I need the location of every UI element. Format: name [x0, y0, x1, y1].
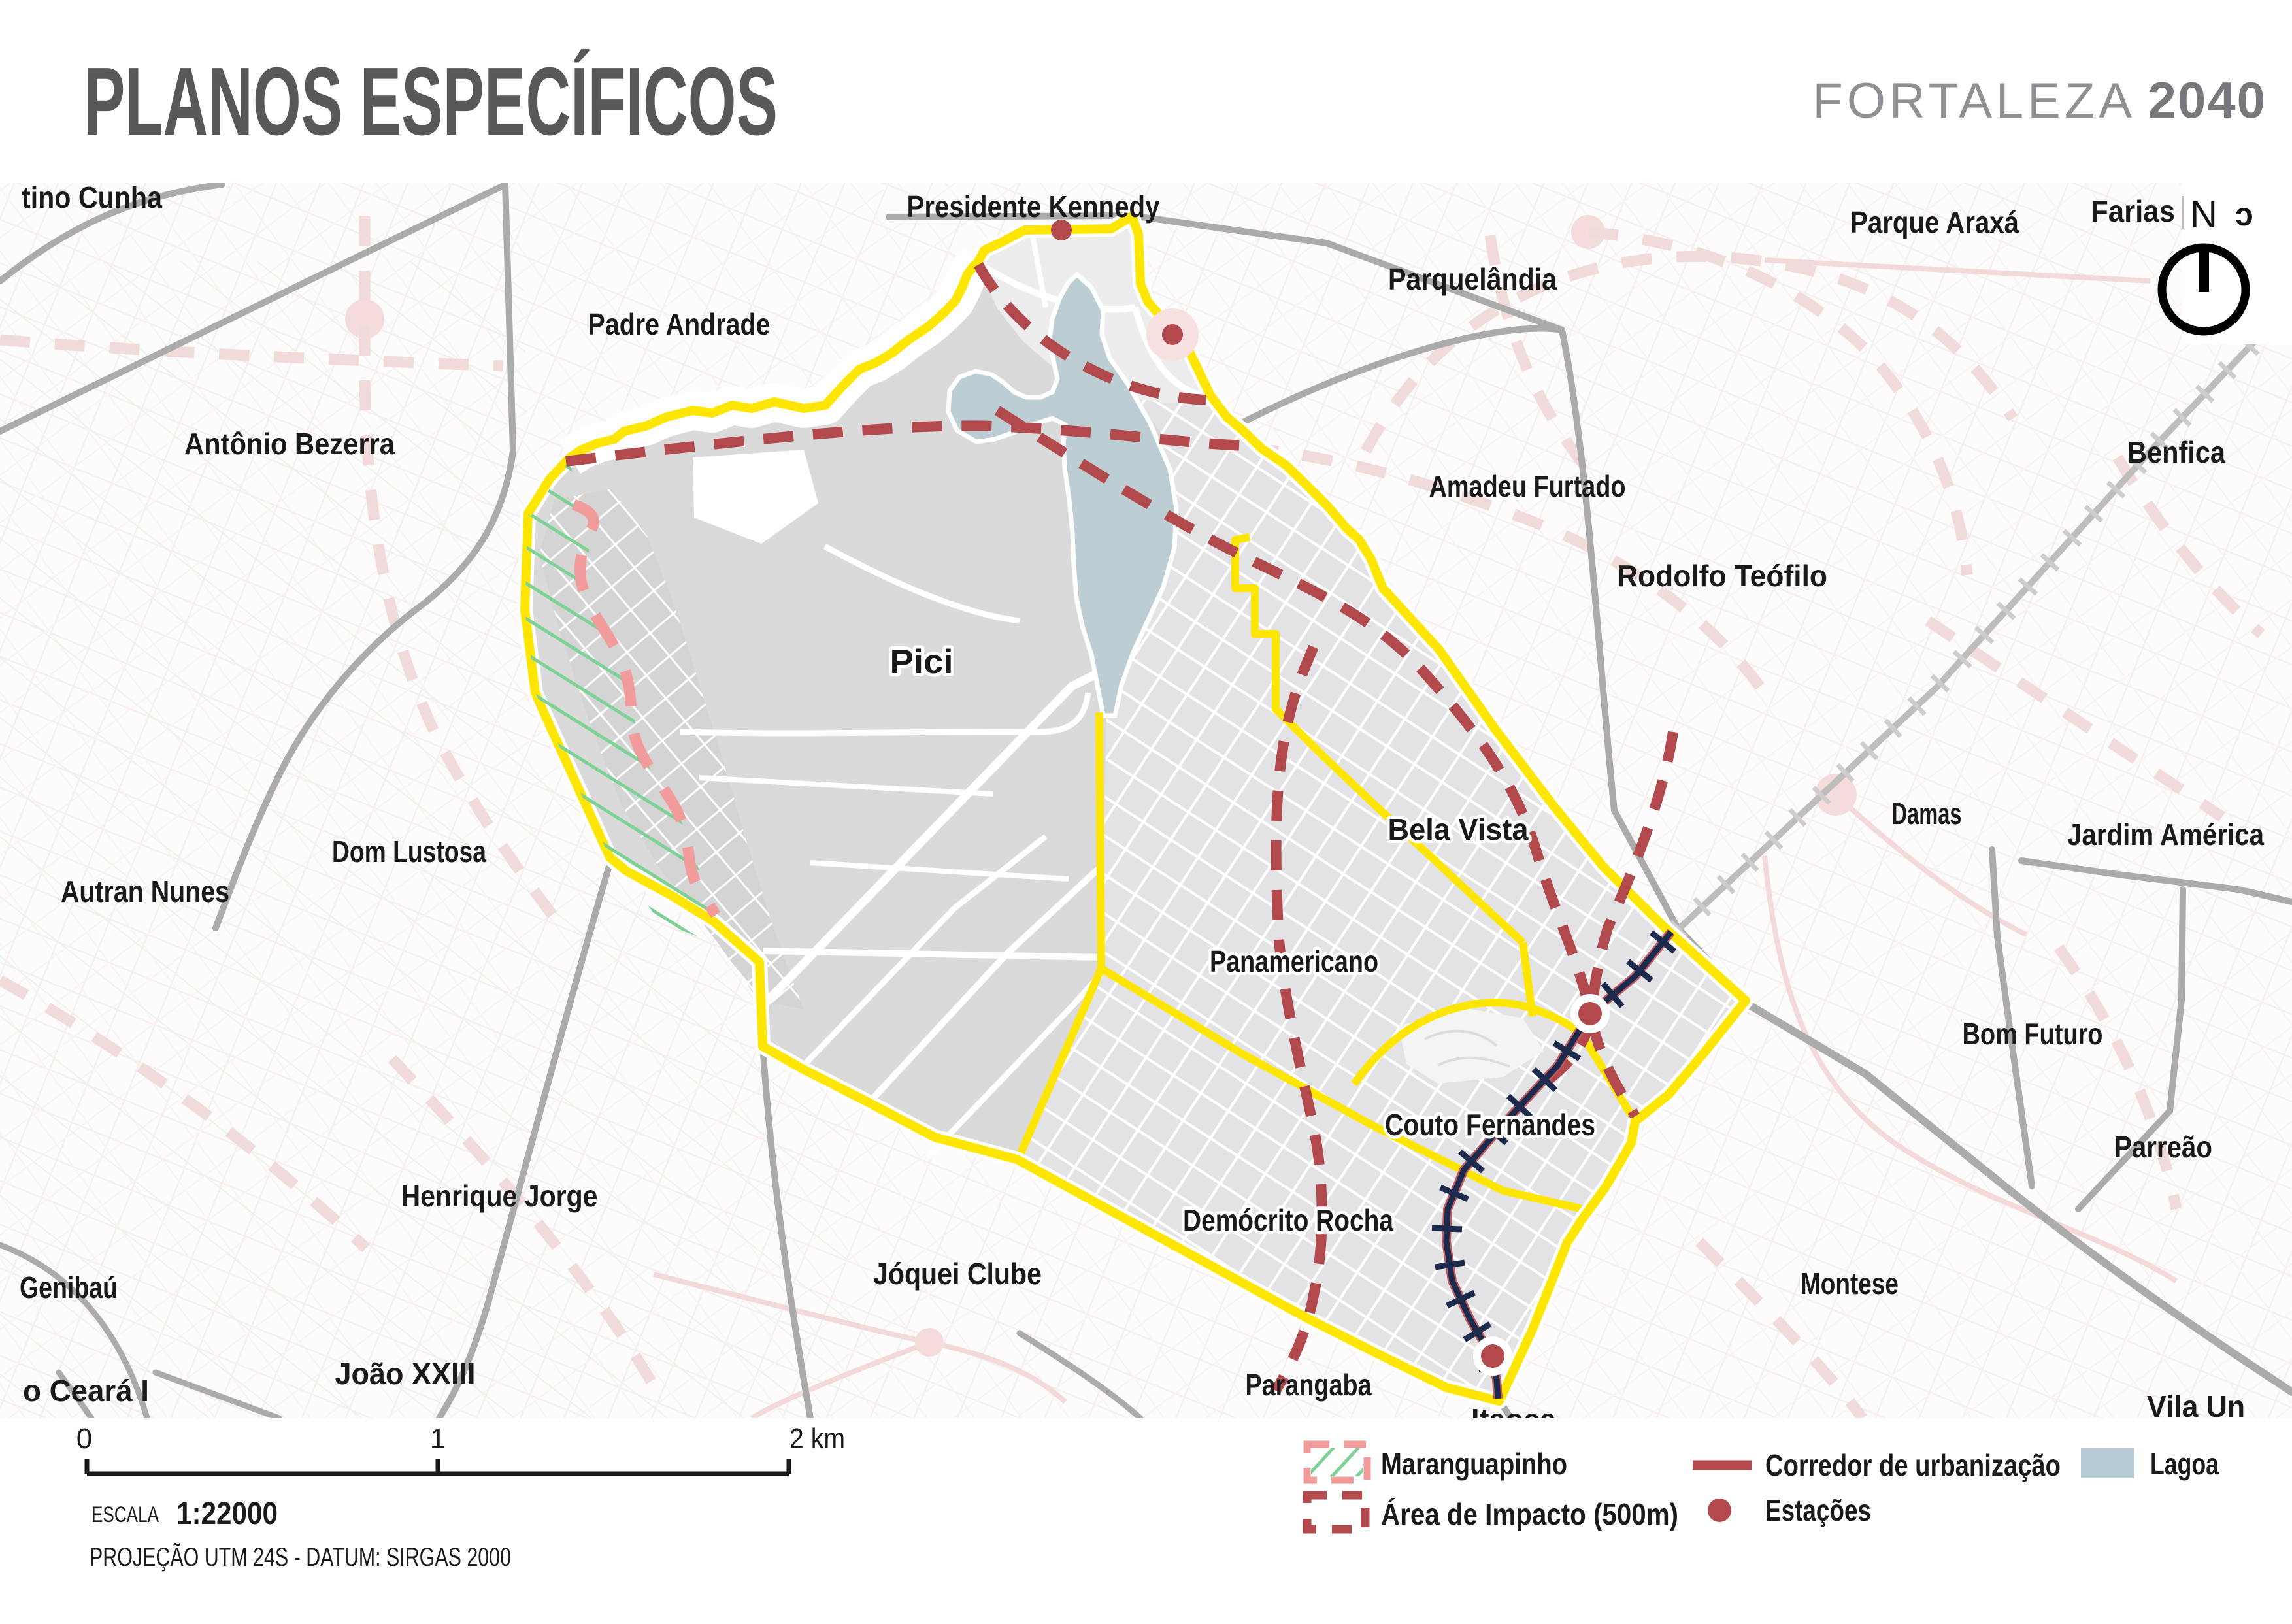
- svg-text:Jóquei Clube: Jóquei Clube: [873, 1257, 1042, 1291]
- svg-text:tino Cunha: tino Cunha: [22, 180, 162, 214]
- svg-text:Antônio Bezerra: Antônio Bezerra: [184, 427, 395, 461]
- svg-text:Panamericano: Panamericano: [1210, 944, 1378, 978]
- svg-text:1:22000: 1:22000: [176, 1497, 278, 1531]
- svg-text:Maranguapinho: Maranguapinho: [1381, 1447, 1567, 1481]
- svg-text:ɔ: ɔ: [2235, 196, 2253, 233]
- svg-text:Parque Araxá: Parque Araxá: [1850, 205, 2019, 239]
- svg-text:Benfica: Benfica: [2127, 435, 2225, 469]
- svg-text:Autran Nunes: Autran Nunes: [61, 874, 229, 908]
- svg-text:Parquelândia: Parquelândia: [1388, 262, 1557, 296]
- svg-text:Henrique Jorge: Henrique Jorge: [401, 1179, 598, 1213]
- svg-text:Estações: Estações: [1765, 1493, 1871, 1527]
- svg-text:Couto Fernandes: Couto Fernandes: [1385, 1108, 1595, 1142]
- svg-text:Jardim América: Jardim América: [2067, 818, 2264, 852]
- svg-text:João XXIII: João XXIII: [335, 1357, 476, 1391]
- svg-text:Vila Un: Vila Un: [2147, 1389, 2245, 1423]
- svg-text:PROJEÇÃO UTM 24S - DATUM: SIRG: PROJEÇÃO UTM 24S - DATUM: SIRGAS 2000: [90, 1542, 511, 1572]
- svg-text:Bela Vista: Bela Vista: [1388, 812, 1529, 846]
- svg-text:Dom Lustosa: Dom Lustosa: [332, 835, 486, 869]
- svg-text:Amadeu Furtado: Amadeu Furtado: [1429, 469, 1626, 503]
- svg-text:o Ceará I: o Ceará I: [23, 1374, 149, 1408]
- svg-text:Padre Andrade: Padre Andrade: [588, 307, 771, 341]
- svg-text:N: N: [2190, 193, 2217, 236]
- svg-text:PLANOS ESPECÍFICOS: PLANOS ESPECÍFICOS: [84, 48, 778, 156]
- svg-text:Pici: Pici: [890, 643, 954, 681]
- svg-text:0: 0: [76, 1423, 92, 1455]
- svg-text:Genibaú: Genibaú: [20, 1270, 118, 1304]
- svg-text:Montese: Montese: [1801, 1267, 1899, 1301]
- svg-text:Corredor de urbanização: Corredor de urbanização: [1765, 1448, 2061, 1482]
- svg-text:FORTALEZA: FORTALEZA: [1812, 73, 2136, 129]
- svg-text:Bom Futuro: Bom Futuro: [1963, 1017, 2103, 1051]
- svg-text:Damas: Damas: [1892, 797, 1962, 831]
- svg-text:Área de Impacto (500m): Área de Impacto (500m): [1381, 1497, 1678, 1531]
- svg-text:Farias: Farias: [2091, 194, 2175, 228]
- svg-text:Rodolfo Teófilo: Rodolfo Teófilo: [1617, 559, 1827, 593]
- svg-text:Parangaba: Parangaba: [1246, 1368, 1372, 1402]
- svg-text:2 km: 2 km: [789, 1423, 845, 1455]
- svg-text:2040: 2040: [2148, 71, 2267, 129]
- svg-text:Lagoa: Lagoa: [2150, 1447, 2219, 1481]
- svg-text:Parreão: Parreão: [2114, 1130, 2212, 1164]
- svg-text:ESCALA: ESCALA: [91, 1502, 159, 1527]
- svg-text:Demócrito Rocha: Demócrito Rocha: [1183, 1203, 1393, 1237]
- svg-text:Presidente Kennedy: Presidente Kennedy: [907, 190, 1160, 224]
- svg-text:1: 1: [430, 1423, 446, 1455]
